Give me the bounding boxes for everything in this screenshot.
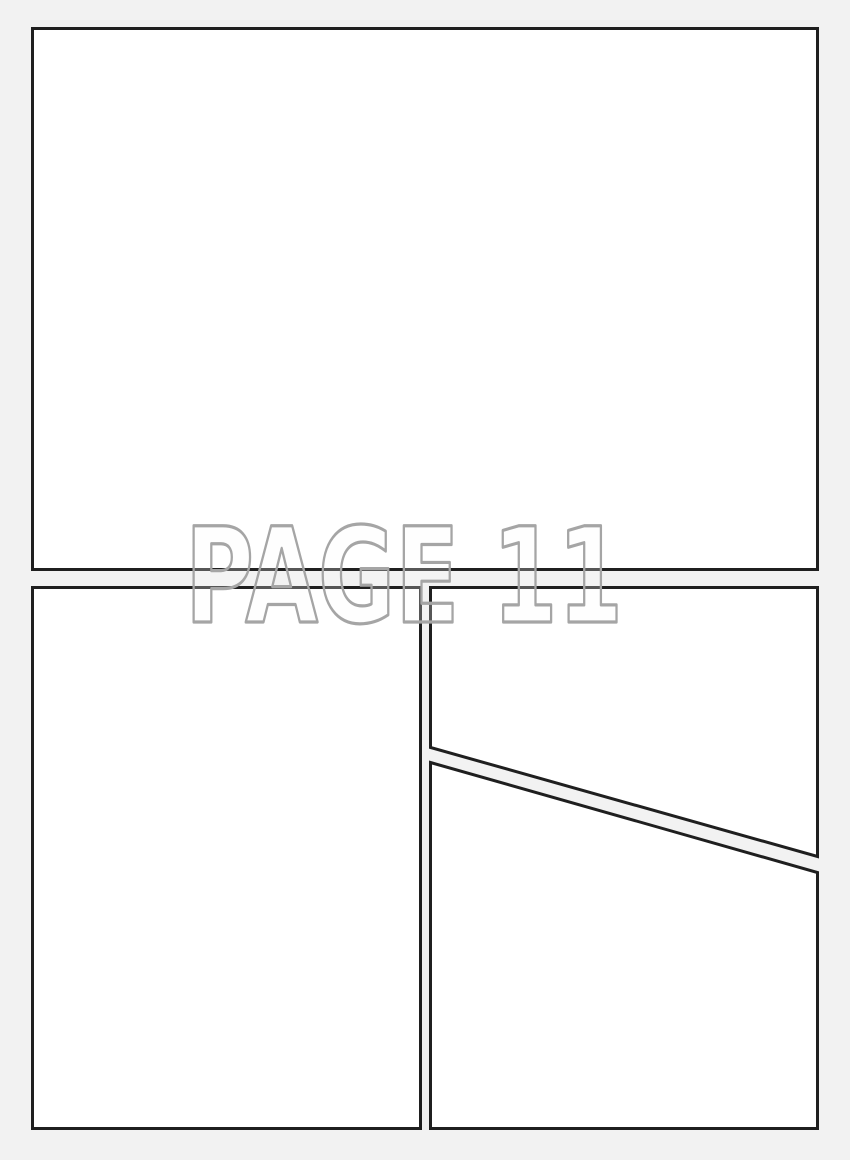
panel-group-bottom-right xyxy=(429,586,819,1130)
panel-2 xyxy=(31,586,422,1130)
comic-page-template: PAGE 11 xyxy=(0,0,850,1160)
panel-1 xyxy=(31,27,819,571)
